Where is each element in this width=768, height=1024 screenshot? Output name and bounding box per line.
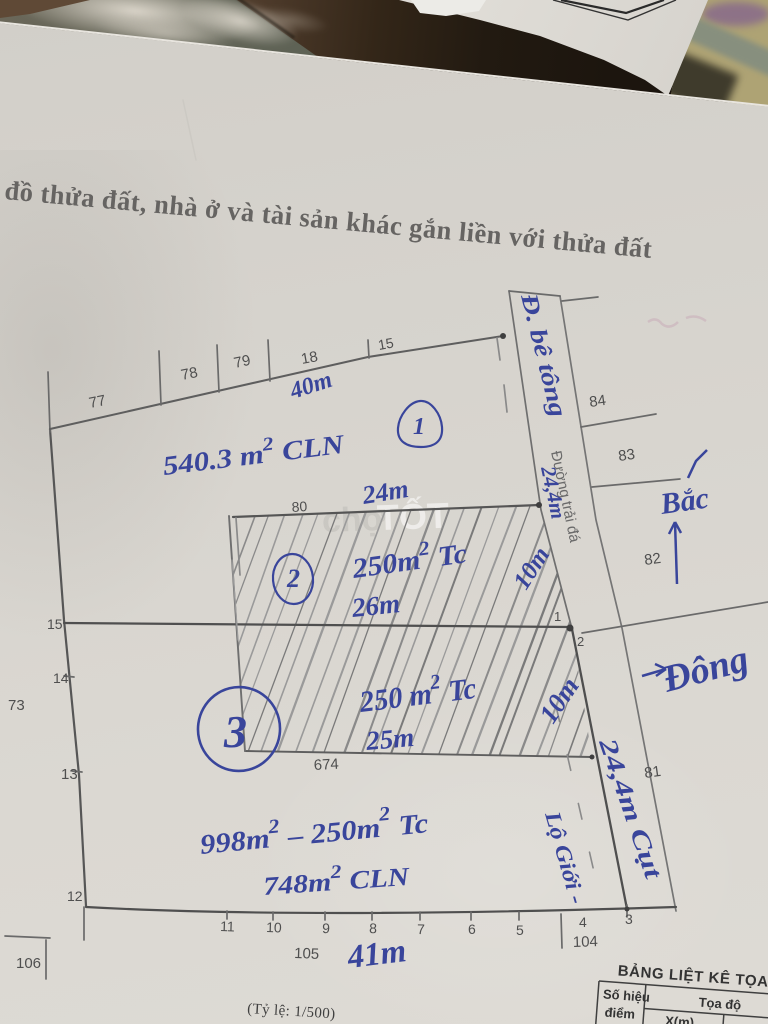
svg-text:3: 3 — [223, 706, 247, 757]
svg-text:998m2 – 250m2 Tc: 998m2 – 250m2 Tc — [198, 799, 430, 861]
svg-text:10m: 10m — [533, 672, 585, 729]
svg-text:78: 78 — [180, 364, 200, 384]
svg-text:77: 77 — [88, 392, 108, 412]
svg-text:748m2 CLN: 748m2 CLN — [262, 857, 411, 901]
svg-text:(Tỷ lệ: 1/500): (Tỷ lệ: 1/500) — [247, 1001, 336, 1022]
svg-text:81: 81 — [643, 763, 662, 782]
svg-text:6: 6 — [468, 921, 476, 937]
svg-text:12: 12 — [67, 888, 83, 904]
svg-text:3: 3 — [625, 911, 633, 927]
svg-text:674: 674 — [313, 756, 339, 774]
svg-text:540.3 m2 CLN: 540.3 m2 CLN — [161, 425, 347, 481]
svg-text:X(m): X(m) — [665, 1013, 695, 1024]
svg-text:Đông: Đông — [657, 638, 752, 701]
svg-text:15: 15 — [377, 334, 395, 352]
svg-text:Lộ Giới -: Lộ Giới - — [540, 807, 591, 906]
svg-text:41m: 41m — [345, 933, 409, 976]
svg-text:18: 18 — [300, 348, 319, 368]
svg-text:106: 106 — [16, 955, 41, 972]
svg-text:26m: 26m — [349, 588, 401, 623]
svg-text:1: 1 — [554, 609, 561, 624]
svg-text:10m: 10m — [508, 542, 555, 594]
svg-text:250m2 Tc: 250m2 Tc — [349, 532, 470, 585]
svg-text:1: 1 — [413, 414, 425, 440]
svg-text:11: 11 — [220, 918, 235, 935]
svg-text:2: 2 — [286, 564, 300, 593]
svg-text:105: 105 — [294, 945, 320, 963]
svg-text:104: 104 — [573, 933, 599, 951]
svg-text:đồ thửa đất, nhà ở và tài sản: đồ thửa đất, nhà ở và tài sản khác gắn l… — [3, 175, 653, 264]
svg-text:83: 83 — [617, 446, 636, 465]
svg-text:84: 84 — [588, 392, 607, 411]
svg-text:82: 82 — [643, 550, 662, 569]
svg-text:80: 80 — [291, 498, 308, 515]
svg-text:Số hiệu: Số hiệu — [602, 986, 650, 1004]
svg-text:2: 2 — [577, 634, 584, 649]
svg-text:15: 15 — [47, 616, 63, 632]
svg-text:Tọa độ: Tọa độ — [698, 995, 742, 1013]
svg-text:13: 13 — [61, 766, 78, 783]
svg-text:40m: 40m — [286, 367, 336, 405]
svg-text:4: 4 — [579, 914, 587, 930]
svg-text:8: 8 — [369, 920, 378, 936]
svg-text:73: 73 — [8, 697, 25, 714]
svg-text:14: 14 — [53, 670, 69, 686]
svg-text:9: 9 — [322, 920, 331, 936]
svg-text:7: 7 — [417, 921, 425, 937]
svg-text:79: 79 — [232, 352, 252, 372]
svg-text:10: 10 — [266, 919, 282, 936]
svg-text:điểm: điểm — [604, 1005, 635, 1022]
svg-text:Bắc: Bắc — [657, 482, 710, 522]
svg-text:5: 5 — [516, 922, 524, 938]
svg-text:25m: 25m — [364, 722, 415, 756]
